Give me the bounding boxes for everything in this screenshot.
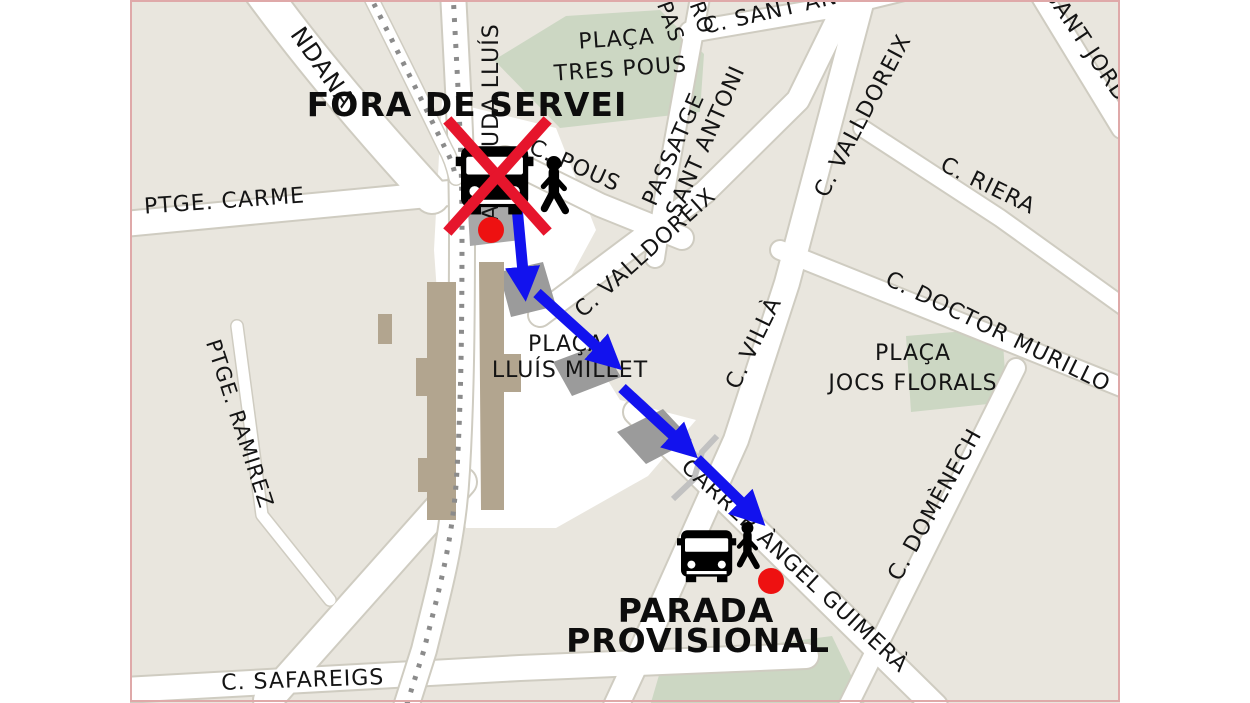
bus-stop-relocation-map: NDANA PTGE. CARME AVINGUDA LLUÍS C. POUS… bbox=[0, 0, 1250, 703]
map-svg: NDANA PTGE. CARME AVINGUDA LLUÍS C. POUS… bbox=[0, 0, 1250, 703]
provisional-stop-title-line2: PROVISIONAL bbox=[566, 621, 830, 660]
place-label-jocs-florals-line2: JOCS FLORALS bbox=[826, 371, 997, 396]
place-label-tres-pous-line1: PLAÇA bbox=[578, 24, 656, 54]
stop-dot-old bbox=[478, 217, 504, 243]
out-of-service-title: FORA DE SERVEI bbox=[307, 85, 628, 124]
station-building bbox=[378, 314, 392, 344]
place-label-lluis-millet-line2: LLUÍS MILLET bbox=[492, 357, 648, 383]
bus-icon-provisional bbox=[677, 530, 736, 582]
place-label-jocs-florals-line1: PLAÇA bbox=[875, 341, 951, 366]
